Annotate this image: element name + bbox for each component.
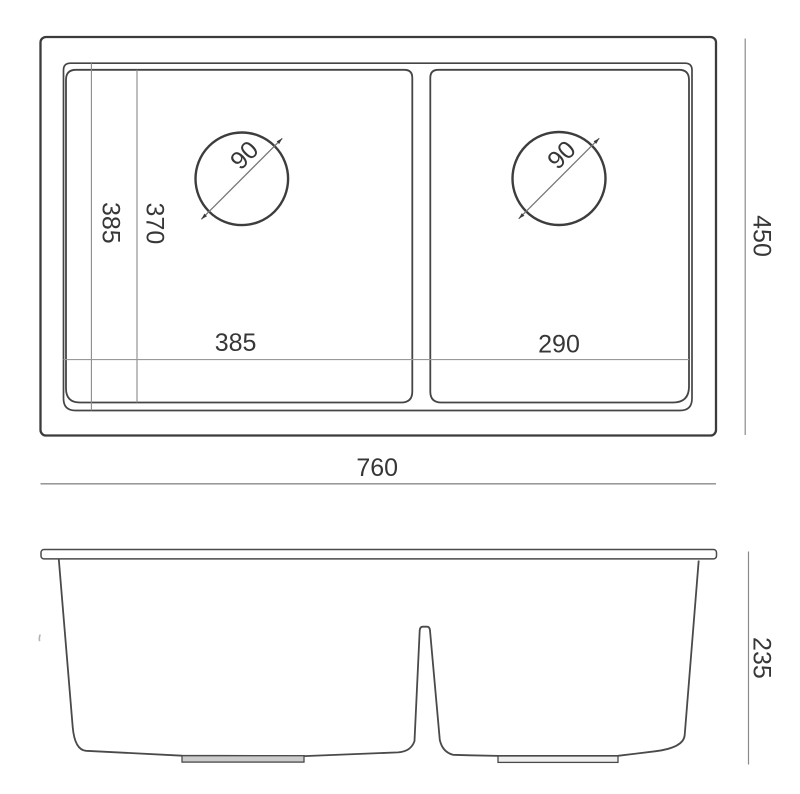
- svg-text:385: 385: [97, 202, 125, 244]
- svg-text:450: 450: [748, 215, 776, 257]
- svg-text:760: 760: [356, 454, 398, 482]
- svg-text:385: 385: [215, 329, 257, 357]
- svg-text:370: 370: [141, 203, 169, 245]
- svg-text:235: 235: [748, 637, 776, 679]
- svg-text:290: 290: [538, 331, 580, 359]
